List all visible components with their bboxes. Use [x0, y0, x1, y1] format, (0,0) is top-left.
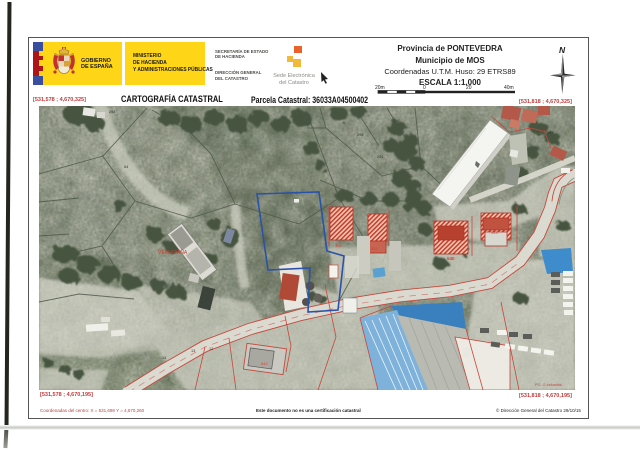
svg-text:PG. G industrial: PG. G industrial [535, 383, 562, 387]
svg-text:543: 543 [491, 230, 498, 235]
svg-text:64: 64 [124, 165, 128, 169]
svg-text:301: 301 [371, 246, 378, 251]
svg-text:296: 296 [357, 133, 363, 137]
svg-text:542: 542 [261, 361, 268, 366]
svg-text:N: N [559, 45, 566, 55]
svg-text:290: 290 [394, 119, 400, 123]
svg-text:306: 306 [335, 243, 342, 248]
svg-text:12: 12 [209, 347, 213, 351]
svg-text:40m: 40m [504, 85, 514, 91]
svg-text:297: 297 [547, 131, 553, 135]
svg-text:14: 14 [162, 356, 166, 360]
svg-text:294: 294 [377, 155, 383, 159]
svg-text:294: 294 [109, 110, 115, 114]
svg-text:20m: 20m [375, 85, 385, 91]
svg-text:20: 20 [466, 85, 472, 91]
svg-text:0: 0 [423, 85, 426, 91]
svg-text:540: 540 [447, 256, 455, 261]
svg-text:13: 13 [191, 349, 195, 353]
svg-text:VEIGADAÑA: VEIGADAÑA [158, 249, 188, 256]
